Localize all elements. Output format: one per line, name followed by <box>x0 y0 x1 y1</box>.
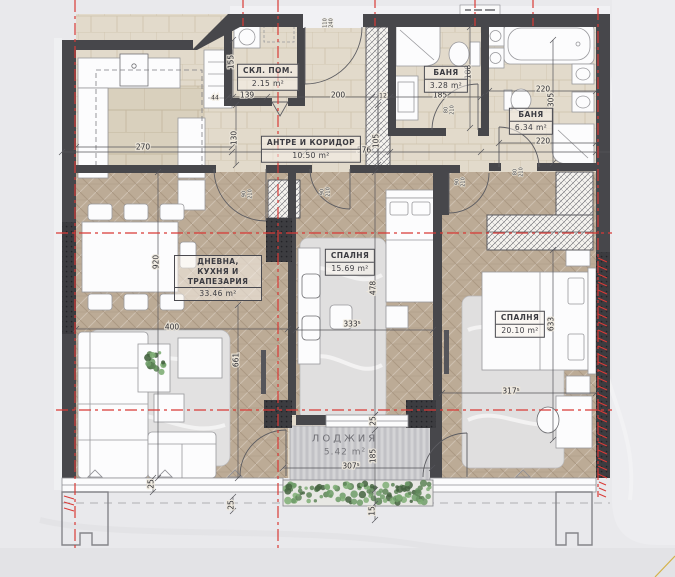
dimension-label: 44 <box>211 95 219 102</box>
dimension-label: 105 <box>372 134 381 149</box>
dimension-label: 307⁵ <box>342 462 359 471</box>
dimension-label: 15 <box>368 506 377 516</box>
dimension-label: 185 <box>369 449 378 464</box>
dimension-label: 12 <box>379 93 387 100</box>
floor-plan-screenshot: 2701392001218522022057644400333⁵317⁵307⁵… <box>0 0 675 577</box>
dimension-label: 25 <box>147 479 156 489</box>
dimension-label: 400 <box>165 323 180 332</box>
dimension-label: 130 <box>230 131 239 146</box>
door-size-label: 210 <box>248 189 254 199</box>
door-size-label: 210 <box>519 167 525 177</box>
dimension-label: 478 <box>369 281 378 296</box>
dimension-label: 576 <box>357 146 372 155</box>
door-size-label: 240 <box>329 18 335 28</box>
floor-plan-drawing: 2701392001218522022057644400333⁵317⁵307⁵… <box>0 0 675 577</box>
dimension-label: 200 <box>331 91 346 100</box>
dimension-label: 185 <box>433 91 448 100</box>
dimension-label: 920 <box>152 255 161 270</box>
dimension-label: 220 <box>536 85 551 94</box>
dimension-label: 270 <box>136 143 151 152</box>
dimension-label: 633 <box>547 317 556 332</box>
dimension-label: 333⁵ <box>343 320 360 329</box>
dimension-label: 155 <box>227 55 236 70</box>
dimension-label: 661 <box>232 353 241 368</box>
dimension-label: 139 <box>240 91 255 100</box>
door-size-label: 210 <box>326 187 332 197</box>
dimension-label: 25 <box>369 416 378 426</box>
dimension-label: 317⁵ <box>502 387 519 396</box>
dimension-label: 25 <box>227 500 236 510</box>
dimension-label: 305 <box>547 93 556 108</box>
dimension-label: 188 <box>464 65 473 80</box>
tv-living <box>261 350 266 394</box>
door-size-label: 210 <box>461 177 467 187</box>
door-size-label: 210 <box>450 105 456 115</box>
dimension-label: 220 <box>536 137 551 146</box>
